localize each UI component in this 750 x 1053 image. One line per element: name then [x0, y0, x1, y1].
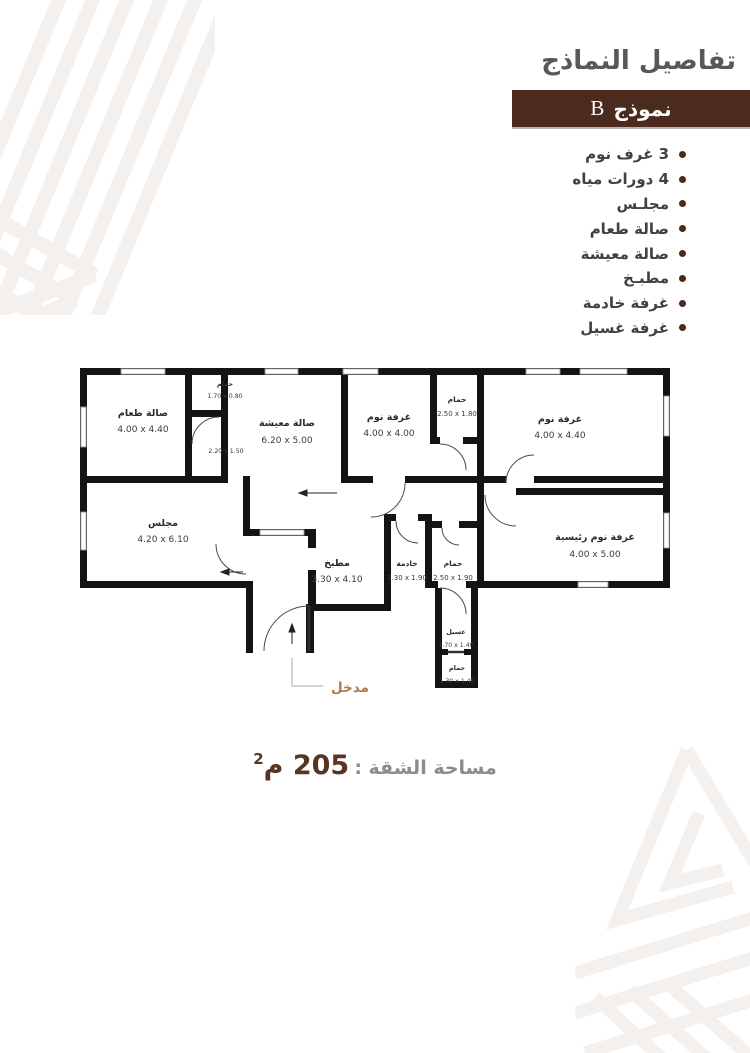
room-label-bath4: حمام — [449, 664, 466, 672]
room-dims-majlis: 4.20 x 6.10 — [137, 535, 188, 545]
area-number: 205 — [293, 750, 349, 781]
feature-label: صالة طعام — [590, 220, 669, 238]
room-label-majlis: مجلس — [148, 518, 178, 529]
room-dims-closet: 2.20 x 1.50 — [208, 448, 243, 455]
feature-label: غرفة خادمة — [583, 294, 669, 312]
area-value: 205 م2 — [253, 750, 349, 781]
feature-item: مطبـخ — [572, 266, 686, 291]
floor-plan: صالة طعام 4.00 x 4.40 حمام 1.70 x 0.80 2… — [75, 356, 675, 704]
feature-item: 4 دورات مياه — [572, 167, 686, 192]
room-label-bath2: حمام — [448, 395, 467, 404]
feature-item: صالة معيشة — [572, 241, 686, 266]
feature-item: غرفة غسيل — [572, 316, 686, 341]
room-label-bedroom1: غرفة نوم — [367, 412, 411, 423]
room-label-bedroom2: غرفة نوم — [538, 414, 582, 425]
door-arrows — [221, 490, 337, 644]
bullet-dot-icon — [679, 275, 686, 282]
feature-item: صالة طعام — [572, 216, 686, 241]
room-dims-dining: 4.00 x 4.40 — [117, 425, 168, 435]
bullet-dot-icon — [679, 200, 686, 207]
area-line: مساحة الشقة : 205 م2 — [0, 750, 750, 781]
room-dims-master: 4.00 x 5.00 — [569, 550, 620, 560]
feature-item: غرفة خادمة — [572, 291, 686, 316]
area-unit: م — [264, 750, 284, 781]
room-dims-bedroom1: 4.00 x 4.00 — [363, 429, 414, 439]
feature-item: 3 غرف نوم — [572, 142, 686, 167]
room-label-kitchen: مطبخ — [324, 558, 350, 569]
feature-label: 4 دورات مياه — [572, 170, 669, 188]
room-dims-maid: 3.30 x 1.90 — [387, 574, 427, 582]
room-dims-living: 6.20 x 5.00 — [261, 436, 312, 446]
room-label-bath1: حمام — [217, 380, 234, 388]
feature-label: 3 غرف نوم — [585, 145, 669, 163]
room-label-bath3: حمام — [444, 559, 463, 568]
room-dims-bath1: 1.70 x 0.80 — [207, 393, 242, 400]
model-badge-bar: نموذج B — [512, 90, 750, 129]
model-letter: B — [590, 96, 604, 121]
area-superscript: 2 — [253, 750, 263, 768]
decorative-pattern-bottom-right — [575, 735, 750, 1053]
bullet-dot-icon — [679, 300, 686, 307]
room-label-living: صالة معيشة — [259, 418, 315, 429]
room-label-master: غرفة نوم رئيسية — [555, 532, 635, 543]
feature-label: مطبـخ — [623, 269, 669, 287]
room-dims-bath2: 2.50 x 1.80 — [437, 410, 477, 418]
feature-item: مجلـس — [572, 192, 686, 217]
decorative-pattern-top-left — [0, 0, 215, 315]
room-dims-bedroom2: 4.00 x 4.40 — [534, 431, 585, 441]
room-dims-bath3: 2.50 x 1.90 — [433, 574, 473, 582]
feature-label: غرفة غسيل — [580, 319, 669, 337]
bullet-dot-icon — [679, 151, 686, 158]
room-label-laundry: غسيل — [446, 628, 466, 636]
page-title: تفاصيل النماذج — [541, 46, 736, 76]
feature-label: صالة معيشة — [581, 245, 669, 263]
feature-label: مجلـس — [616, 195, 669, 213]
room-dims-kitchen: 3.30 x 4.10 — [311, 575, 362, 585]
features-list: 3 غرف نوم 4 دورات مياه مجلـس صالة طعام ص… — [572, 142, 686, 340]
entrance-label: مدخل — [331, 680, 369, 696]
room-dims-laundry: 1.70 x 1.40 — [438, 642, 473, 649]
bullet-dot-icon — [679, 176, 686, 183]
bullet-dot-icon — [679, 324, 686, 331]
room-label-maid: خادمة — [396, 559, 417, 568]
brochure-page: تفاصيل النماذج نموذج B 3 غرف نوم 4 دورات… — [0, 0, 750, 1053]
area-label: مساحة الشقة : — [354, 757, 496, 779]
room-dims-bath4: 1.30 x 1.40 — [439, 678, 474, 685]
room-labels: صالة طعام 4.00 x 4.40 حمام 1.70 x 0.80 2… — [117, 380, 634, 685]
model-label: نموذج — [613, 97, 671, 121]
bullet-dot-icon — [679, 250, 686, 257]
bullet-dot-icon — [679, 225, 686, 232]
room-label-dining: صالة طعام — [118, 408, 168, 419]
entrance-leader-line — [292, 658, 323, 686]
